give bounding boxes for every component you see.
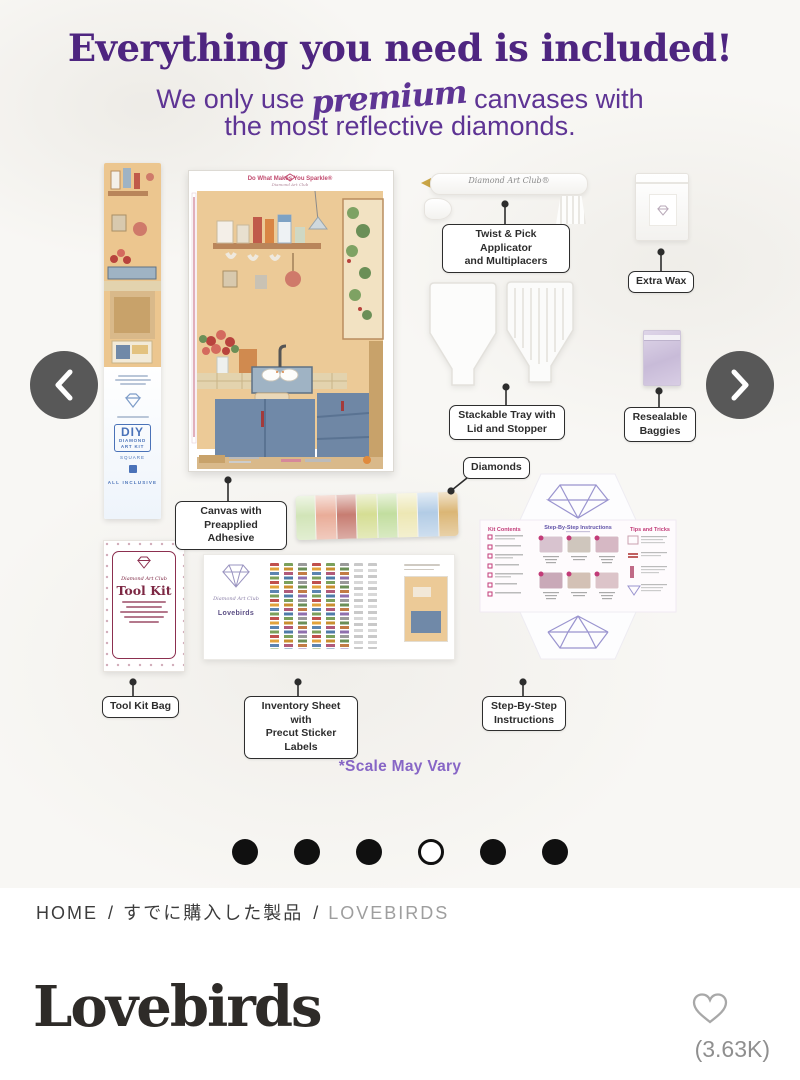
callout-extra-wax: Extra Wax [628,271,694,293]
breadcrumb-collection-link[interactable]: すでに購入した製品 [123,903,303,923]
diamond-bags [295,492,458,540]
toolkit-title-text: Tool Kit [113,583,175,598]
resealable-baggie [643,330,681,386]
brand-square-icon [129,465,137,473]
tray-lid [428,281,498,389]
callout-stackable-tray: Stackable Tray with Lid and Stopper [449,405,565,440]
inventory-reference-panel [398,555,454,659]
diamond-logo-icon [122,393,144,409]
canvas-header-text: Do What Makes You Sparkle® [248,175,333,182]
kit-contents-header: Kit Contents [488,527,521,533]
product-title: Lovebirds [33,974,321,1040]
tray-stopper [505,280,575,386]
breadcrumb-home-link[interactable]: HOME [36,903,98,923]
all-inclusive-text: ALL INCLUSIVE [104,480,161,485]
carousel-dot[interactable] [480,839,506,865]
inventory-title-text: Lovebirds [204,610,268,617]
carousel-dot[interactable] [418,839,444,865]
scale-disclaimer: *Scale May Vary [0,758,800,776]
callout-applicator: Twist & Pick Applicator and Multiplacers [442,224,570,273]
wishlist-button[interactable] [688,990,732,1030]
callout-tool-kit-bag: Tool Kit Bag [102,696,179,718]
extra-wax-packet [635,173,689,241]
pen-brand-text: Diamond Art Club® [431,176,587,185]
tips-tricks-header: Tips and Tricks [630,527,670,533]
carousel-dot[interactable] [294,839,320,865]
callout-inventory-sheet: Inventory Sheet with Precut Sticker Labe… [244,696,358,759]
likes-count: (3.63K) [660,1036,770,1063]
tool-kit-bag: Diamond Art Club Tool Kit [103,540,185,672]
inventory-sheet: Diamond Art Club Lovebirds [203,554,455,660]
hero-headline: Everything you need is included! [0,26,800,70]
toolkit-brand-text: Diamond Art Club [113,576,175,582]
callout-canvas-adhesive: Canvas with Preapplied Adhesive [175,501,287,550]
hero-subtitle-line2: the most reflective diamonds. [0,111,800,142]
diy-text: DIY [119,426,146,438]
wax-label [649,194,677,226]
step-by-step-header: Step-By-Step Instructions [544,525,612,531]
diy-kit-logo: DIY DIAMOND ART KIT [114,424,151,452]
instructions-sheet: Kit Contents Step-By-Step Instructions [478,472,678,664]
diamond-logo-icon [135,556,153,569]
pen-tip [424,198,452,220]
carousel-dot[interactable] [232,839,258,865]
carousel-prev-button[interactable] [30,351,98,419]
subtitle-pre: We only use [156,84,304,114]
kit-box-label-panel: DIY DIAMOND ART KIT SQUARE ALL INCLUSIVE [104,367,161,519]
kit-canvas: Do What Makes You Sparkle® Diamond Art C… [188,170,394,472]
diamond-logo-icon [219,563,253,589]
inventory-brand-text: Diamond Art Club [204,596,268,602]
chevron-left-icon [51,367,77,403]
carousel-next-button[interactable] [706,351,774,419]
sticker-label-columns [268,555,398,659]
breadcrumb-current-page: LOVEBIRDS [328,903,449,923]
product-image-slide[interactable]: Everything you need is included! We only… [0,0,800,888]
applicator-pen: Diamond Art Club® [430,173,588,195]
inventory-brand-panel: Diamond Art Club Lovebirds [204,555,268,659]
chevron-right-icon [727,367,753,403]
kit-box-art [104,163,161,367]
drill-type-text: SQUARE [104,455,161,460]
carousel-dot[interactable] [542,839,568,865]
product-page: Everything you need is included! We only… [0,0,800,1080]
canvas-brand-text: Diamond Art Club [271,182,309,187]
kit-box: DIY DIAMOND ART KIT SQUARE ALL INCLUSIVE [104,163,161,519]
product-info-section: HOME/すでに購入した製品/LOVEBIRDS Lovebirds (3.63… [0,888,800,1080]
mini-canvas-thumb [404,576,448,642]
breadcrumb: HOME/すでに購入した製品/LOVEBIRDS [36,899,449,925]
subtitle-post: canvases with [474,84,644,114]
multiplacer-tip [556,196,586,224]
carousel-dot[interactable] [356,839,382,865]
callout-resealable-baggies: Resealable Baggies [624,407,696,442]
heart-icon [691,992,729,1026]
callout-instructions: Step-By-Step Instructions [482,696,566,731]
callout-diamonds: Diamonds [463,457,530,479]
diamond-logo-icon [656,205,670,216]
carousel-dots [0,839,800,865]
